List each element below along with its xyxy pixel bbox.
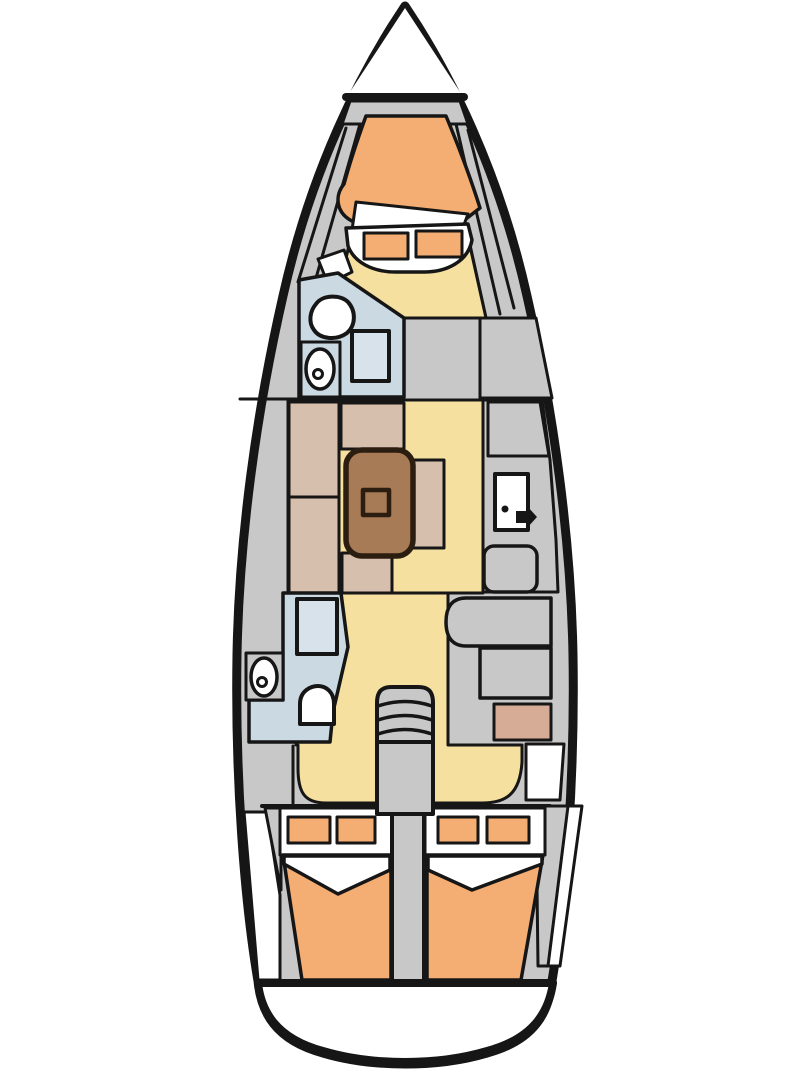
settee-back-upper (289, 402, 339, 497)
stbd-aft-pillow-right (487, 817, 529, 843)
stbd-aft-pillow-left (438, 817, 478, 843)
salon-table-center (363, 490, 389, 515)
aft-head-shower (297, 599, 337, 654)
forward-head-toilet (310, 297, 354, 338)
forward-head-shower (352, 331, 389, 381)
stbd-locker-mid (488, 402, 549, 456)
stbd-aft-deck-white (526, 744, 564, 800)
vberth-cushion-right (416, 231, 462, 257)
stbd-locker-forward (480, 318, 552, 398)
galley-counter-lower (480, 648, 551, 698)
galley-counter-upper (446, 598, 551, 646)
forward-head-sink-drain (314, 370, 323, 379)
bow-deck-white (344, 8, 466, 101)
nav-seat (484, 546, 537, 592)
galley-stove (494, 704, 551, 740)
vberth-cushion-left (364, 233, 408, 259)
sailboat-floorplan-page (0, 0, 810, 1080)
aft-head-sink-drain (258, 678, 267, 687)
settee-back-lower (289, 497, 339, 593)
sailboat-floorplan-diagram (0, 0, 810, 1080)
settee-bottom-bench (342, 553, 392, 593)
companionway-base (377, 742, 433, 814)
port-aft-pillow-right (337, 817, 375, 843)
engine-compartment-column (392, 814, 424, 983)
nav-door-dot (502, 506, 509, 513)
aft-head-toilet (300, 686, 334, 724)
settee-top-bench (341, 403, 404, 449)
port-aft-pillow-left (288, 817, 330, 843)
